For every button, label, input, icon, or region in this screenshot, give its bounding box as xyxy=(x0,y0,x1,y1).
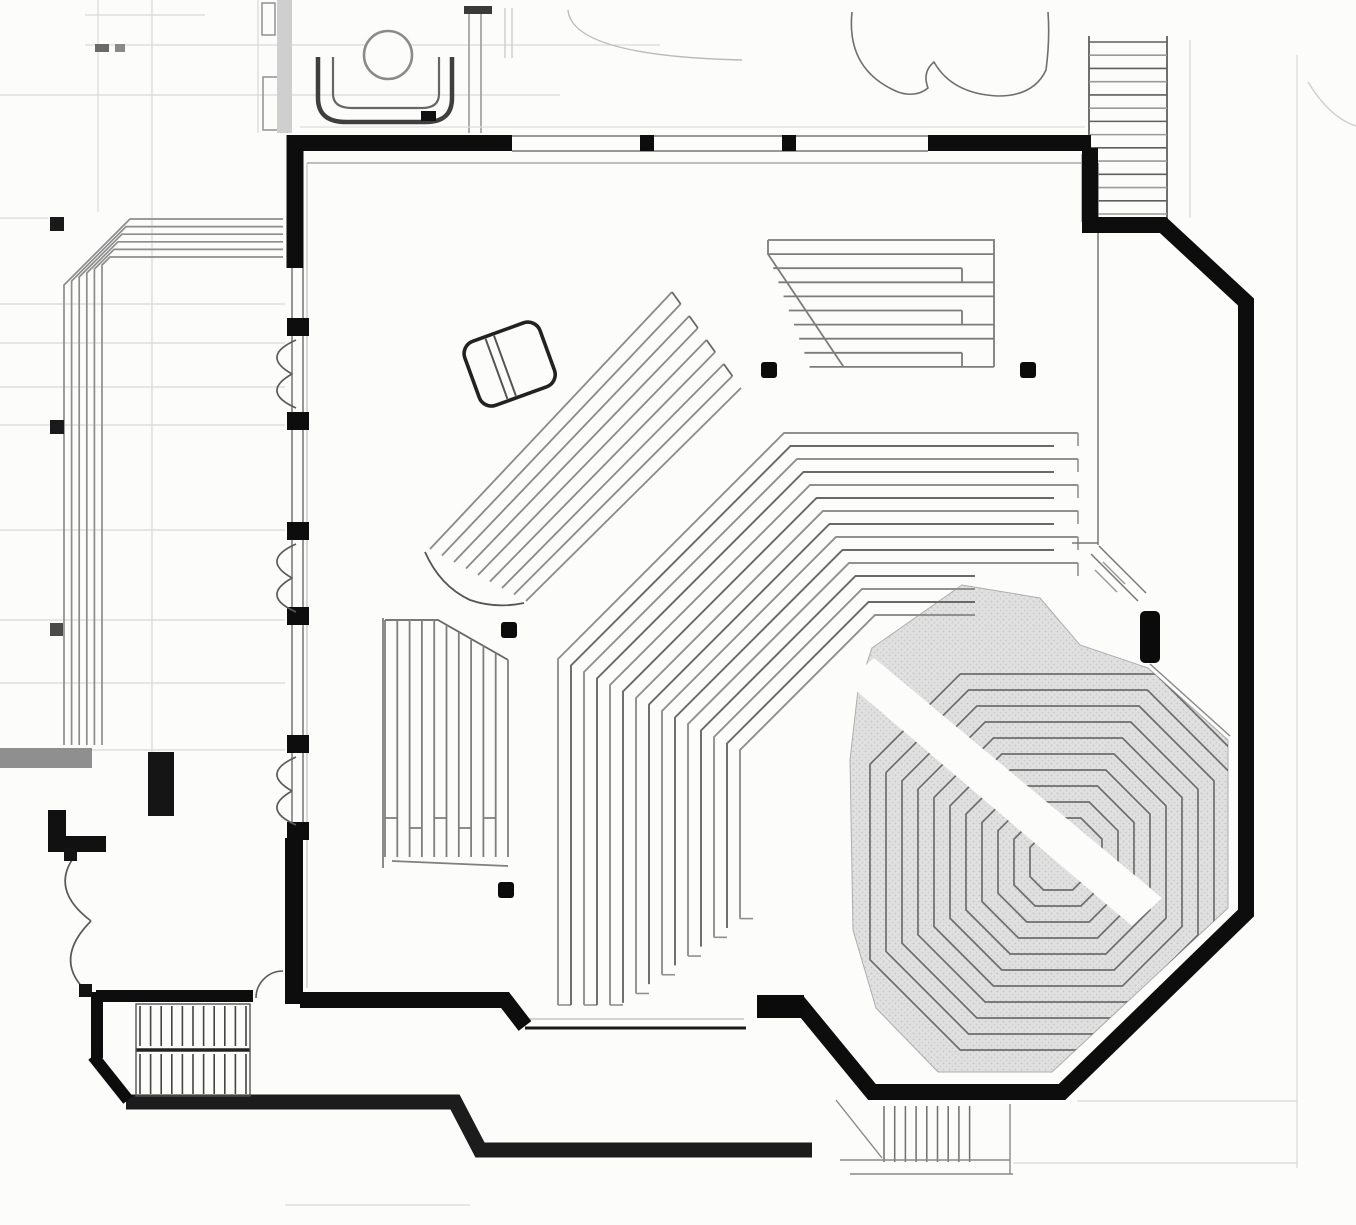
entry-kiosk xyxy=(262,0,292,133)
pulpit-console xyxy=(460,318,558,409)
canopy-arc xyxy=(568,10,742,60)
southwest-door-swings xyxy=(64,848,92,997)
south-exterior-stairs xyxy=(884,1106,970,1162)
east-exit-pier xyxy=(1140,611,1160,663)
southwest-stair-treads xyxy=(136,1004,250,1096)
floor-plan-canvas xyxy=(0,0,1356,1225)
west-wall-doors xyxy=(277,318,309,840)
southwest-corner-walls xyxy=(48,810,106,852)
terrace-posts xyxy=(50,217,64,636)
west-wall-stub xyxy=(0,748,92,768)
column-dot xyxy=(761,362,777,378)
entry-scallop-curve xyxy=(851,12,1048,96)
south-inner-wall xyxy=(300,1000,525,1026)
stair-room-chamfer-wall xyxy=(93,1056,128,1100)
site-boundary-curve xyxy=(1308,82,1356,126)
column-dot xyxy=(498,882,514,898)
stair-room-door-swing xyxy=(256,971,283,998)
floor-plan-page xyxy=(0,0,1356,1225)
south-stairs-outline xyxy=(836,1100,1013,1174)
narthex-outer-wall xyxy=(126,1102,812,1150)
south-door-pier xyxy=(757,995,804,1018)
northeast-exterior-stairs xyxy=(1089,36,1167,220)
south-inner-wall-thin xyxy=(525,1019,746,1028)
west-terrace-steps xyxy=(64,219,283,745)
column-dot xyxy=(1020,362,1036,378)
north-seating-block xyxy=(768,240,994,367)
west-pier xyxy=(148,752,174,816)
column-dot xyxy=(501,622,517,638)
west-pew-block xyxy=(383,618,508,868)
angled-pew-block xyxy=(425,292,741,605)
